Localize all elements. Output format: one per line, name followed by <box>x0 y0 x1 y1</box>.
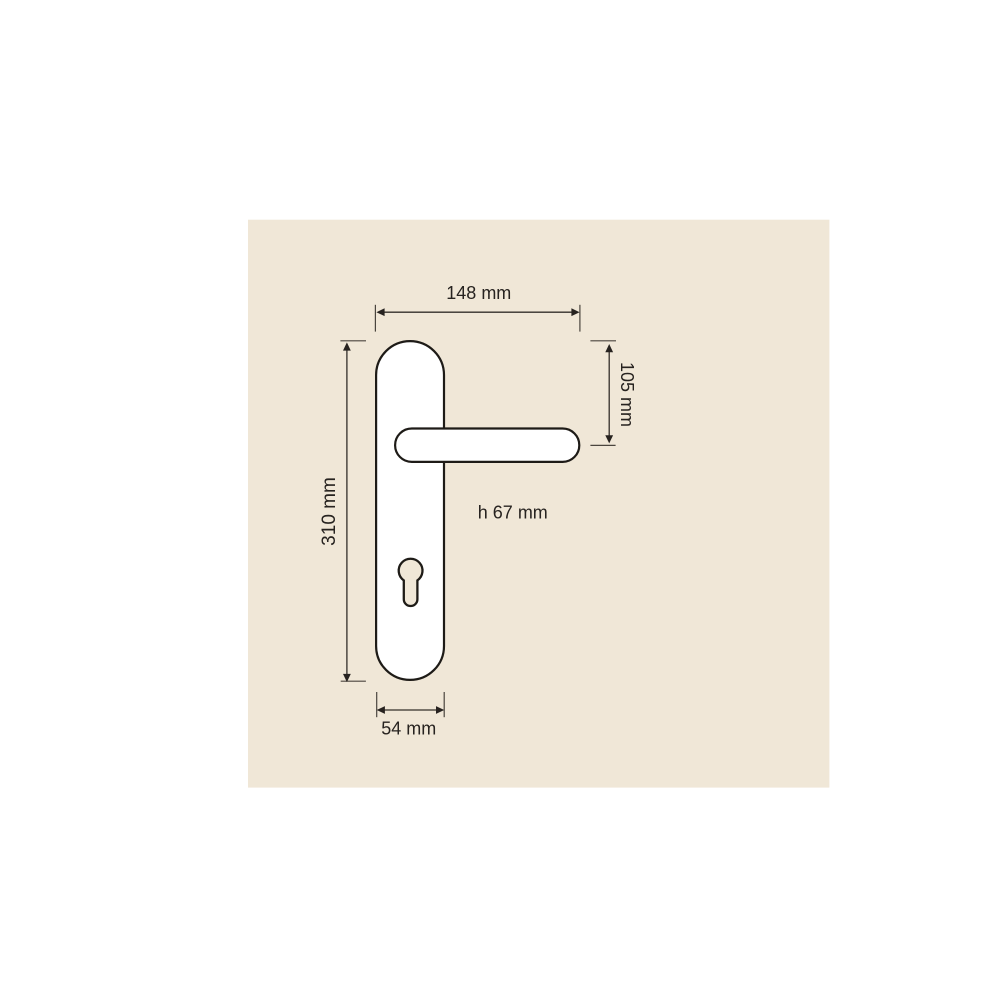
svg-text:310 mm: 310 mm <box>319 477 340 546</box>
svg-text:54 mm: 54 mm <box>381 719 436 739</box>
svg-text:h 67 mm: h 67 mm <box>478 503 548 523</box>
svg-text:105 mm: 105 mm <box>617 362 637 427</box>
svg-text:148 mm: 148 mm <box>446 283 511 303</box>
